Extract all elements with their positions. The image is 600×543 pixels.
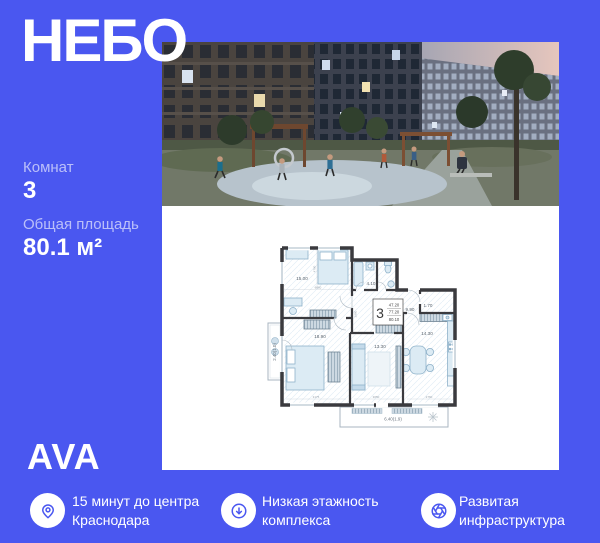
north-mark-icon — [428, 412, 438, 422]
dim-4790: 4790 — [313, 265, 317, 272]
stamp-living-area: 47.20 — [389, 303, 400, 308]
room-label-bedroom-top: 15.00 — [296, 276, 308, 281]
arrow-down-circle-icon — [230, 502, 248, 520]
room-label-balcony-left: 2.40(1.0) — [272, 343, 277, 361]
area-label: Общая площадь — [23, 216, 139, 233]
rooms-value: 3 — [23, 177, 36, 205]
stamp-apartment-area: 77.20 — [389, 310, 400, 315]
rooms-label: Комнат — [23, 159, 74, 176]
dim-2760: 2760 — [426, 395, 433, 399]
stamp-rooms: 3 — [376, 305, 384, 321]
floor-plan: 3 47.20 77.20 80.10 15.00 4.10 9.90 1.70… — [262, 242, 462, 432]
project-title: НЕБО — [21, 6, 186, 75]
ava-logo: AVA — [27, 436, 101, 478]
complex-photo — [162, 42, 559, 206]
feature-badge-distance — [30, 493, 65, 528]
feature-line: 15 минут до центра — [72, 492, 199, 511]
feature-line: комплекса — [262, 511, 379, 530]
dim-6060: 6060 — [315, 285, 322, 289]
feature-line: Низкая этажность — [262, 492, 379, 511]
stamp-total-area: 80.10 — [389, 317, 400, 322]
room-label-living: 13.30 — [374, 344, 386, 349]
dim-2980: 2980 — [354, 310, 358, 317]
room-label-closet: 1.70 — [424, 303, 433, 308]
content-panel: 3 47.20 77.20 80.10 15.00 4.10 9.90 1.70… — [162, 42, 559, 470]
room-label-bedroom-left: 18.90 — [314, 334, 326, 339]
listing-card[interactable]: НЕБО Комнат 3 Общая площадь 80.1 м² AVA — [0, 0, 600, 543]
room-label-bathroom: 4.10 — [367, 281, 376, 286]
feature-line: Развитая — [459, 492, 565, 511]
dim-3050: 3050 — [373, 395, 380, 399]
room-label-balcony-bottom: 6.40(1.9) — [384, 417, 402, 422]
feature-text-lowrise: Низкая этажность комплекса — [262, 492, 379, 530]
feature-text-distance: 15 минут до центра Краснодара — [72, 492, 199, 530]
location-pin-icon — [39, 502, 57, 520]
room-label-kitchen: 14.30 — [421, 331, 433, 336]
feature-badge-infrastructure — [421, 493, 456, 528]
feature-text-infrastructure: Развитая инфраструктура — [459, 492, 565, 530]
feature-line: инфраструктура — [459, 511, 565, 530]
aperture-icon — [430, 502, 448, 520]
courtyard-scene — [162, 42, 559, 206]
dim-3175: 3175 — [313, 395, 320, 399]
feature-line: Краснодара — [72, 511, 199, 530]
room-label-hall: 9.90 — [406, 307, 415, 312]
area-value: 80.1 м² — [23, 234, 102, 262]
area-stamp: 3 47.20 77.20 80.10 — [373, 299, 403, 325]
feature-badge-lowrise — [221, 493, 256, 528]
